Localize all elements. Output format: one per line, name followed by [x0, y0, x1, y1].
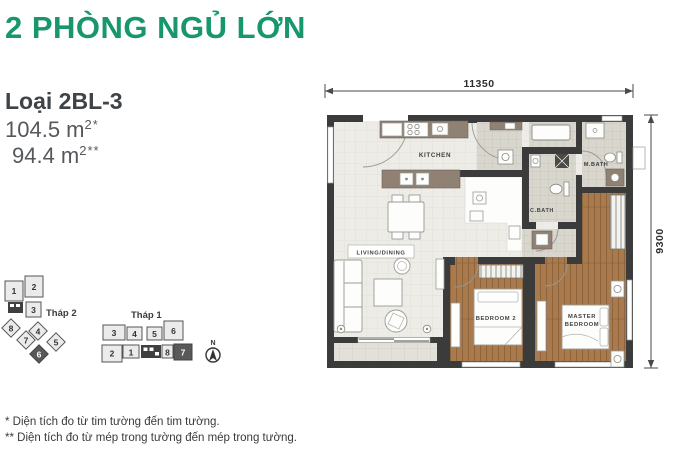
- sofa: [334, 260, 362, 332]
- tower1-title: Tháp 1: [131, 310, 162, 321]
- tower2-core: [8, 302, 23, 313]
- tower2-unit-2: 2: [32, 282, 37, 292]
- tower1-unit-5: 5: [152, 329, 157, 339]
- tower1-unit-7: 7: [181, 348, 186, 358]
- tower1-unit-4: 4: [132, 329, 137, 339]
- cbath-label: C.BATH: [530, 208, 554, 214]
- tower1-unit-1: 1: [129, 348, 134, 358]
- bathtub: [532, 125, 570, 140]
- master-label-1: MASTER: [568, 314, 596, 320]
- dining-set: [388, 195, 424, 239]
- bedroom2-dresser: [451, 303, 460, 347]
- tower2-unit-5: 5: [54, 338, 59, 348]
- tower2-unit-3: 3: [31, 305, 36, 315]
- north-arrow-icon: [209, 349, 217, 361]
- washer: [498, 150, 513, 164]
- master-label-2: BEDROOM: [565, 322, 599, 328]
- keyplans: 1 2 3 4 5 6 7 8 Tháp 2 Tháp 1 3 4 5 6 2 …: [0, 265, 240, 395]
- area-secondary-sup: 2**: [79, 143, 99, 158]
- bedroom2-label: BEDROOM 2: [476, 316, 517, 322]
- keyplan-tower1: Tháp 1 3 4 5 6 2 1 8 7: [102, 310, 192, 362]
- area-primary: 104.5 m2*: [5, 117, 99, 143]
- footnote-2: ** Diện tích đo từ mép trong tường đến m…: [5, 430, 297, 446]
- fridge: [382, 123, 402, 136]
- corridor-closet: [610, 195, 625, 249]
- armchair: [385, 310, 407, 332]
- tower2-unit-7: 7: [24, 336, 29, 346]
- balcony-floor: [333, 343, 437, 361]
- tower2-unit-8: 8: [9, 324, 14, 334]
- floorplan: 11350 9300: [300, 75, 675, 420]
- tower1-unit-6: 6: [171, 326, 176, 336]
- tower2-unit-1: 1: [12, 286, 17, 296]
- page-title: 2 PHÒNG NGỦ LỚN: [5, 10, 306, 46]
- footnotes: * Diện tích đo từ tim tường đến tim tườn…: [5, 414, 297, 446]
- side-table: [394, 258, 410, 274]
- tower1-core: [141, 345, 161, 358]
- area-secondary: 94.4 m2**: [12, 143, 100, 169]
- dimension-right-value: 9300: [654, 228, 666, 253]
- tower2-unit-4: 4: [36, 327, 41, 337]
- mbath-label: M.BATH: [584, 162, 609, 168]
- kitchen-label: KITCHEN: [419, 152, 451, 159]
- tower1-unit-3: 3: [112, 328, 117, 338]
- tower2-unit-6: 6: [37, 350, 42, 360]
- north-compass: N: [206, 340, 220, 362]
- bedroom2-wardrobe: [479, 265, 523, 278]
- kitchen-sink: [432, 123, 448, 135]
- dimension-top-value: 11350: [463, 78, 494, 90]
- footnote-1: * Diện tích đo từ tim tường đến tim tườn…: [5, 414, 297, 430]
- compass-n-label: N: [210, 340, 215, 347]
- tower1-unit-2: 2: [110, 349, 115, 359]
- area-primary-sup: 2*: [85, 117, 99, 132]
- master-dresser: [537, 301, 546, 351]
- cbath-sink: [531, 155, 540, 167]
- living-label: LIVING/DINING: [356, 251, 405, 257]
- unit-type-label: Loại 2BL-3: [5, 88, 123, 115]
- tower1-unit-8: 8: [165, 348, 170, 358]
- sliding-door: [358, 337, 430, 342]
- shower: [586, 123, 604, 138]
- tower2-title: Tháp 2: [46, 308, 77, 319]
- keyplan-tower2: 1 2 3 4 5 6 7 8 Tháp 2: [2, 276, 77, 363]
- stove: [404, 123, 428, 137]
- coffee-table: [374, 279, 402, 306]
